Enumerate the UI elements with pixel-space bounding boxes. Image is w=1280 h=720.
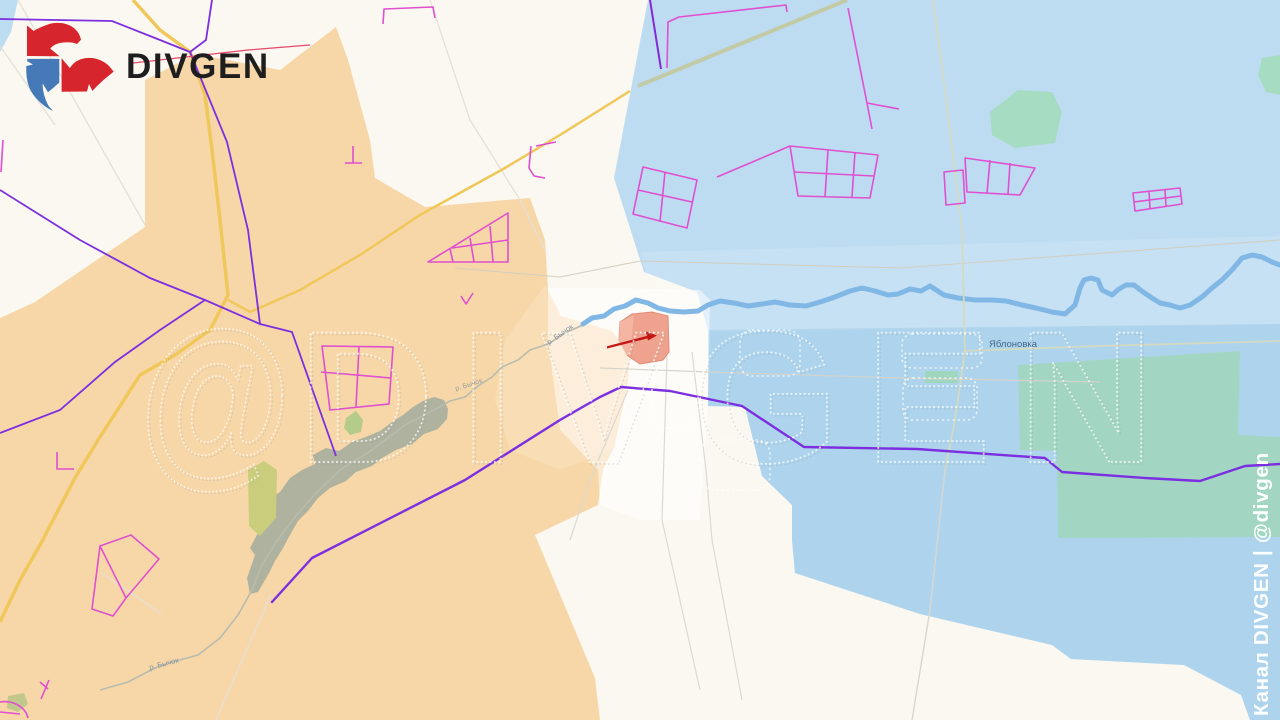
svg-text:Яблоновка: Яблоновка bbox=[989, 339, 1038, 350]
svg-text:Канал DIVGEN | @divgen: Канал DIVGEN | @divgen bbox=[1250, 452, 1273, 716]
svg-text:DIVGEN: DIVGEN bbox=[300, 294, 1183, 504]
svg-text:DIVGEN: DIVGEN bbox=[126, 47, 270, 86]
svg-text:@: @ bbox=[141, 294, 293, 504]
